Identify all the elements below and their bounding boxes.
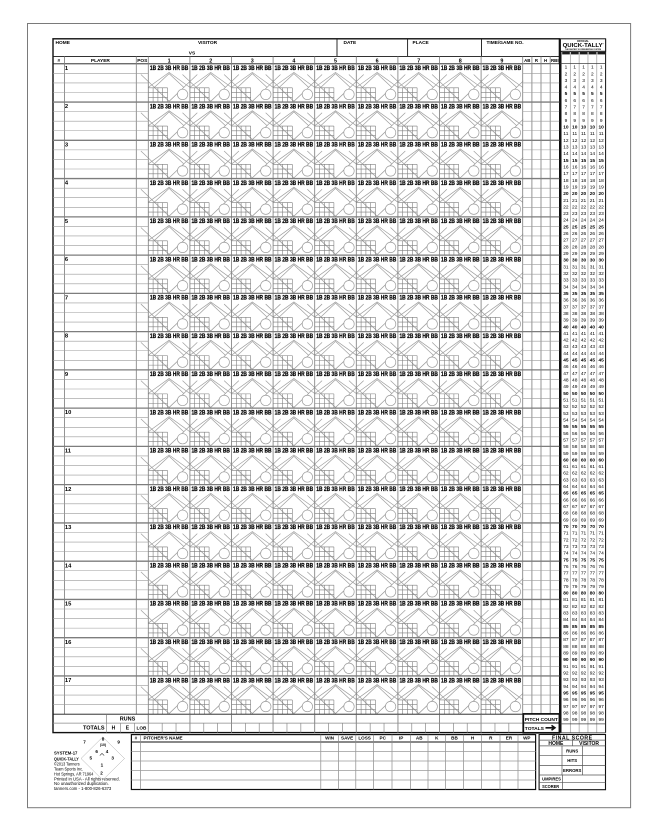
svg-text:TIME/GAME NO.: TIME/GAME NO. bbox=[487, 40, 524, 46]
svg-text:HOME: HOME bbox=[56, 40, 71, 46]
svg-text:ER: ER bbox=[506, 736, 513, 741]
svg-text:9: 9 bbox=[117, 740, 120, 745]
svg-text:9: 9 bbox=[500, 58, 503, 64]
svg-text:#: # bbox=[57, 58, 60, 64]
svg-text:7: 7 bbox=[65, 296, 68, 302]
svg-text:IP: IP bbox=[399, 736, 403, 741]
svg-text:VS: VS bbox=[189, 50, 196, 56]
svg-text:VISITOR: VISITOR bbox=[579, 741, 599, 747]
svg-text:10: 10 bbox=[65, 410, 71, 416]
svg-text:1: 1 bbox=[101, 762, 104, 767]
svg-text:LOB: LOB bbox=[137, 725, 148, 730]
svg-text:2: 2 bbox=[209, 58, 212, 64]
svg-text:ERRORS: ERRORS bbox=[563, 768, 582, 773]
svg-text:#: # bbox=[135, 736, 138, 741]
svg-text:4: 4 bbox=[106, 749, 109, 754]
svg-text:HITS: HITS bbox=[567, 758, 577, 763]
svg-text:4: 4 bbox=[292, 58, 295, 64]
svg-text:UMPIRES: UMPIRES bbox=[542, 777, 561, 782]
svg-text:6: 6 bbox=[376, 58, 379, 64]
svg-text:PITCH COUNT: PITCH COUNT bbox=[525, 717, 558, 723]
svg-text:7: 7 bbox=[83, 740, 86, 745]
svg-text:16: 16 bbox=[65, 640, 72, 646]
svg-text:AB: AB bbox=[416, 736, 423, 741]
svg-text:SCORER: SCORER bbox=[542, 784, 560, 789]
svg-text:7: 7 bbox=[417, 58, 420, 64]
svg-text:HOME: HOME bbox=[548, 741, 564, 747]
svg-text:tanners.com - 1-800-826-6373: tanners.com - 1-800-826-6373 bbox=[54, 786, 112, 791]
svg-text:QUICK-TALLY: QUICK-TALLY bbox=[54, 756, 79, 761]
svg-text:6: 6 bbox=[95, 749, 98, 754]
svg-text:RUNS: RUNS bbox=[566, 748, 578, 753]
svg-text:AB: AB bbox=[524, 58, 530, 63]
svg-text:SAVE: SAVE bbox=[341, 736, 353, 741]
svg-text:PC: PC bbox=[380, 736, 387, 741]
svg-text:12: 12 bbox=[65, 487, 71, 493]
svg-text:5: 5 bbox=[334, 58, 337, 64]
svg-text:PLAYER: PLAYER bbox=[91, 58, 111, 64]
svg-text:H: H bbox=[112, 725, 116, 731]
svg-text:WP: WP bbox=[523, 736, 530, 741]
svg-text:RUNS: RUNS bbox=[120, 717, 136, 723]
svg-text:VISITOR: VISITOR bbox=[198, 40, 218, 46]
svg-text:5: 5 bbox=[90, 755, 93, 760]
svg-text:2: 2 bbox=[65, 104, 68, 110]
svg-text:(10): (10) bbox=[100, 743, 106, 747]
svg-text:1: 1 bbox=[168, 58, 171, 64]
svg-text:SYSTEM-17: SYSTEM-17 bbox=[54, 750, 78, 755]
svg-text:3: 3 bbox=[111, 755, 114, 760]
svg-text:PLACE: PLACE bbox=[413, 40, 430, 46]
svg-text:DATE: DATE bbox=[344, 40, 358, 46]
svg-text:TOTALS: TOTALS bbox=[83, 725, 105, 731]
svg-text:13: 13 bbox=[65, 525, 72, 531]
svg-text:11: 11 bbox=[65, 449, 72, 455]
svg-text:RBI: RBI bbox=[551, 58, 558, 63]
svg-text:8: 8 bbox=[102, 737, 105, 742]
svg-text:H: H bbox=[544, 58, 547, 63]
svg-text:POS: POS bbox=[137, 58, 148, 64]
svg-text:2: 2 bbox=[100, 770, 103, 775]
svg-text:14: 14 bbox=[65, 563, 72, 569]
svg-text:TOTALS: TOTALS bbox=[525, 726, 545, 732]
svg-text:PITCHER'S NAME: PITCHER'S NAME bbox=[144, 736, 183, 741]
svg-text:LOSS: LOSS bbox=[358, 736, 371, 741]
svg-text:15: 15 bbox=[65, 602, 72, 608]
svg-text:THE FASTEST SCOREKEEPING SYSTE: THE FASTEST SCOREKEEPING SYSTEM bbox=[565, 48, 601, 51]
svg-text:BB: BB bbox=[451, 736, 458, 741]
svg-text:17: 17 bbox=[65, 678, 71, 684]
svg-text:8: 8 bbox=[459, 58, 462, 64]
svg-text:WIN: WIN bbox=[325, 736, 335, 741]
svg-text:3: 3 bbox=[251, 58, 254, 64]
